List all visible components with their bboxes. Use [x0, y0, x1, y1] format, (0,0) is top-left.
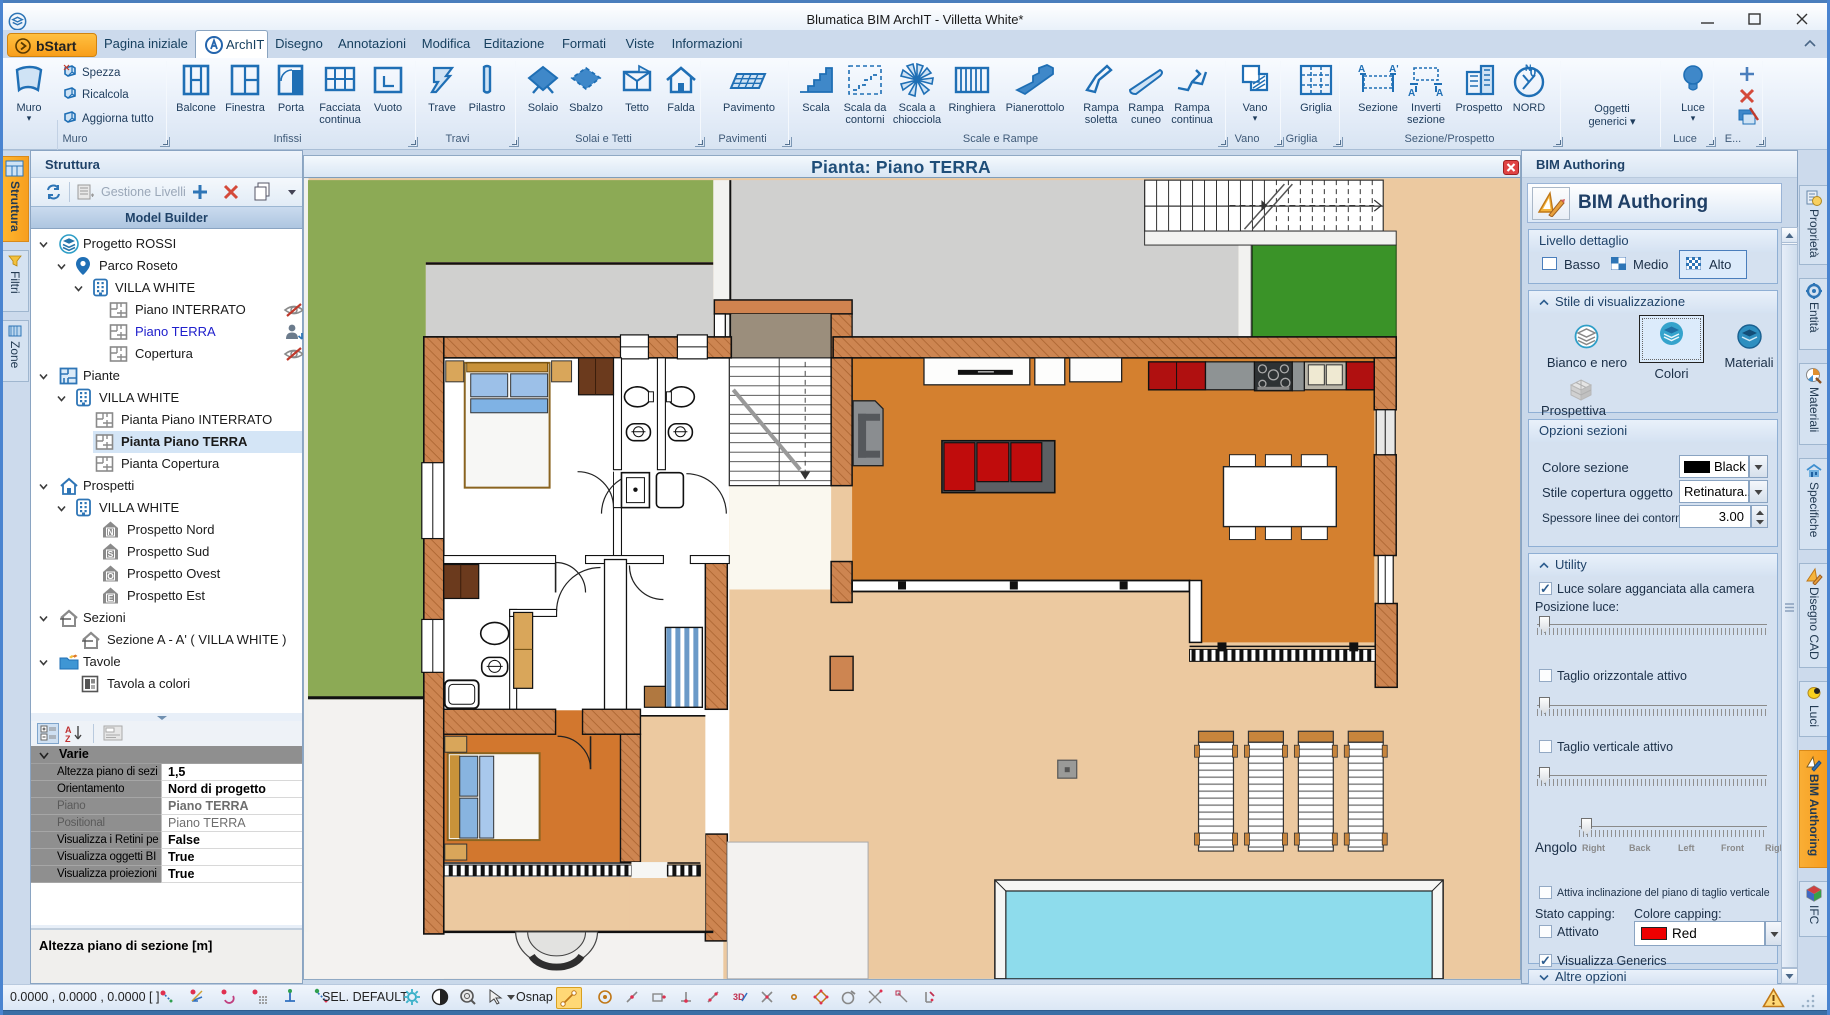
svg-text:S: S	[108, 549, 114, 559]
svg-text:N: N	[107, 527, 113, 537]
svg-text:A: A	[1436, 88, 1443, 98]
svg-text:Z: Z	[65, 734, 71, 743]
svg-text:E: E	[108, 593, 114, 603]
svg-text:O: O	[107, 571, 114, 581]
svg-text:A: A	[1408, 88, 1415, 98]
svg-text:N: N	[1525, 63, 1532, 73]
svg-text:3D: 3D	[733, 992, 745, 1002]
